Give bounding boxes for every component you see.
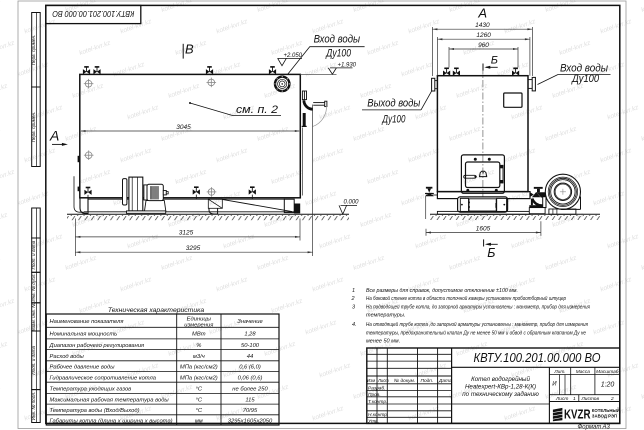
svg-text:Т.контр.: Т.контр.	[368, 399, 387, 405]
svg-text:kotel-kvr.kz: kotel-kvr.kz	[263, 340, 297, 357]
svg-text:kotel-kvr.kz: kotel-kvr.kz	[606, 104, 640, 121]
svg-text:Ду100: Ду100	[381, 114, 406, 126]
svg-text:kotel-kvr.kz: kotel-kvr.kz	[0, 254, 2, 271]
svg-text:kotel-kvr.kz: kotel-kvr.kz	[592, 319, 626, 336]
svg-text:kotel-kvr.kz: kotel-kvr.kz	[592, 190, 626, 207]
svg-text:Лист: Лист	[555, 396, 568, 402]
svg-text:kotel-kvr.kz: kotel-kvr.kz	[270, 168, 304, 185]
svg-text:температуры, предохранительный: температуры, предохранительный клапан Ду…	[366, 329, 586, 336]
svg-text:Гидравлическое сопротивление к: Гидравлическое сопротивление котла	[50, 375, 157, 381]
svg-text:+1.930: +1.930	[338, 62, 357, 68]
svg-text:kotel-kvr.kz: kotel-kvr.kz	[126, 104, 160, 121]
svg-text:kotel-kvr.kz: kotel-kvr.kz	[599, 18, 633, 35]
svg-text:kotel-kvr.kz: kotel-kvr.kz	[78, 39, 112, 56]
svg-text:0,06 (0,6): 0,06 (0,6)	[238, 375, 263, 381]
svg-text:kotel-kvr.kz: kotel-kvr.kz	[64, 125, 98, 142]
svg-text:Масса: Масса	[576, 369, 591, 375]
svg-text:3125: 3125	[179, 230, 194, 237]
svg-text:Подп.: Подп.	[421, 378, 434, 384]
svg-text:kotel-kvr.kz: kotel-kvr.kz	[448, 254, 482, 271]
svg-text:kotel-kvr.kz: kotel-kvr.kz	[352, 0, 386, 14]
svg-text:50-100: 50-100	[241, 343, 260, 349]
svg-text:Подп. и дата: Подп. и дата	[31, 345, 36, 374]
svg-text:1:20: 1:20	[601, 382, 615, 389]
svg-text:Значение: Значение	[237, 319, 263, 325]
svg-text:Вход воды: Вход воды	[314, 33, 361, 45]
svg-text:kotel-kvr.kz: kotel-kvr.kz	[503, 405, 537, 422]
svg-text:2: 2	[351, 296, 355, 302]
svg-text:kotel-kvr.kz: kotel-kvr.kz	[0, 340, 9, 357]
svg-text:Подп. и дата: Подп. и дата	[31, 240, 36, 269]
svg-text:3295х1605х2050: 3295х1605х2050	[228, 418, 273, 424]
svg-text:2: 2	[610, 396, 614, 402]
svg-text:1: 1	[573, 396, 576, 402]
svg-text:kotel-kvr.kz: kotel-kvr.kz	[119, 276, 153, 293]
svg-text:Масштаб: Масштаб	[596, 369, 619, 375]
svg-text:МПа (кгс/см2): МПа (кгс/см2)	[180, 365, 218, 371]
svg-text:Пров.: Пров.	[368, 392, 381, 398]
svg-text:0,6 (6,0): 0,6 (6,0)	[239, 365, 261, 371]
svg-text:70/95: 70/95	[243, 408, 258, 414]
svg-text:°С: °С	[196, 387, 203, 393]
svg-text:kotel-kvr.kz: kotel-kvr.kz	[414, 362, 448, 379]
svg-text:На подводящей трубе котла, д: На подводящей трубе котла, до запорной а…	[366, 304, 590, 311]
svg-text:kotel-kvr.kz: kotel-kvr.kz	[599, 147, 633, 164]
svg-text:kotel-kvr.kz: kotel-kvr.kz	[318, 233, 352, 250]
svg-text:Листов: Листов	[581, 396, 600, 402]
svg-text:№ докум.: № докум.	[394, 378, 415, 384]
svg-text:kotel-kvr.kz: kotel-kvr.kz	[407, 405, 441, 422]
svg-text:Б: Б	[487, 246, 495, 260]
svg-text:kotel-kvr.kz: kotel-kvr.kz	[352, 254, 386, 271]
svg-text:На отводящей трубе котла ,до з: На отводящей трубе котла ,до запорной ар…	[366, 321, 588, 328]
svg-text:kotel-kvr.kz: kotel-kvr.kz	[215, 147, 249, 164]
svg-text:kotel-kvr.kz: kotel-kvr.kz	[640, 0, 644, 14]
svg-text:kotel-kvr.kz: kotel-kvr.kz	[112, 61, 146, 78]
svg-text:мм: мм	[195, 418, 203, 424]
svg-text:kotel-kvr.kz: kotel-kvr.kz	[222, 233, 256, 250]
svg-text:Heatexpert-КВр-1,28-К(К): Heatexpert-КВр-1,28-К(К)	[465, 384, 536, 391]
svg-text:+2.050: +2.050	[284, 53, 303, 59]
svg-text:Ду100: Ду100	[570, 73, 599, 85]
svg-text:менее 50 мм.: менее 50 мм.	[366, 338, 400, 344]
svg-text:kotel-kvr.kz: kotel-kvr.kz	[0, 168, 16, 185]
svg-text:kotel-kvr.kz: kotel-kvr.kz	[0, 297, 16, 314]
svg-text:Диапазон рабочего регулировани: Диапазон рабочего регулирования	[49, 343, 145, 349]
svg-text:Котел водогрейный: Котел водогрейный	[471, 376, 530, 383]
svg-text:kotel-kvr.kz: kotel-kvr.kz	[160, 254, 194, 271]
svg-text:kotel-kvr.kz: kotel-kvr.kz	[366, 168, 400, 185]
svg-text:И: И	[552, 382, 557, 388]
svg-text:Н.контр.: Н.контр.	[368, 412, 388, 418]
svg-text:kotel-kvr.kz: kotel-kvr.kz	[599, 276, 633, 293]
svg-text:kotel-kvr.kz: kotel-kvr.kz	[640, 383, 644, 400]
svg-text:°С: °С	[196, 408, 203, 414]
svg-text:КВТУ.100.201.00.000 ВО: КВТУ.100.201.00.000 ВО	[474, 351, 601, 365]
svg-text:kotel-kvr.kz: kotel-kvr.kz	[318, 362, 352, 379]
svg-text:Формат: Формат	[578, 425, 602, 430]
svg-text:115: 115	[245, 397, 255, 403]
svg-text:4.: 4.	[352, 322, 357, 328]
svg-text:Дата: Дата	[438, 378, 452, 384]
svg-text:Перв. примен.: Перв. примен.	[31, 112, 36, 143]
svg-text:Техническая характеристика: Техническая характеристика	[108, 307, 204, 314]
svg-text:температуры.: температуры.	[366, 312, 405, 318]
svg-text:kotel-kvr.kz: kotel-kvr.kz	[64, 254, 98, 271]
svg-text:1260: 1260	[476, 32, 491, 39]
svg-text:Лист: Лист	[377, 378, 389, 383]
svg-text:KVZR: KVZR	[564, 407, 591, 422]
svg-text:В: В	[185, 42, 194, 57]
svg-text:Взам. инв. №: Взам. инв. №	[31, 303, 36, 331]
svg-text:kotel-kvr.kz: kotel-kvr.kz	[414, 233, 448, 250]
svg-text:Рабочее давление воды: Рабочее давление воды	[50, 365, 116, 371]
svg-text:А: А	[477, 6, 487, 21]
svg-text:Номинальная мощность: Номинальная мощность	[50, 332, 118, 338]
svg-text:Все размеры для справок, допус: Все размеры для справок, допустимое откл…	[366, 288, 518, 294]
svg-text:Температура воды (Вход/Выход): Температура воды (Вход/Выход)	[50, 408, 140, 414]
svg-text:kotel-kvr.kz: kotel-kvr.kz	[304, 319, 338, 336]
svg-text:Изм: Изм	[367, 378, 375, 383]
svg-text:Температура уходящих газов: Температура уходящих газов	[50, 387, 132, 393]
svg-text:3045: 3045	[176, 124, 191, 131]
svg-text:kotel-kvr.kz: kotel-kvr.kz	[606, 233, 640, 250]
svg-text:Габариты котла (длина х ширина: Габариты котла (длина х ширина х высота)	[50, 418, 173, 424]
svg-text:не более 250: не более 250	[232, 387, 268, 393]
svg-text:kotel-kvr.kz: kotel-kvr.kz	[407, 147, 441, 164]
svg-text:1,28: 1,28	[244, 332, 256, 338]
svg-text:kotel-kvr.kz: kotel-kvr.kz	[208, 190, 242, 207]
svg-text:А3: А3	[602, 425, 611, 430]
svg-text:44: 44	[247, 354, 253, 360]
svg-text:Расход воды: Расход воды	[50, 354, 85, 360]
svg-text:1605: 1605	[476, 225, 491, 232]
svg-text:kotel-kvr.kz: kotel-kvr.kz	[119, 147, 153, 164]
svg-text:kotel-kvr.kz: kotel-kvr.kz	[407, 18, 441, 35]
svg-text:kotel-kvr.kz: kotel-kvr.kz	[510, 233, 544, 250]
svg-text:м3/ч: м3/ч	[193, 354, 205, 360]
svg-text:Наименование показателя: Наименование показателя	[50, 319, 124, 325]
svg-text:kotel-kvr.kz: kotel-kvr.kz	[0, 0, 2, 14]
svg-text:kotel-kvr.kz: kotel-kvr.kz	[0, 39, 16, 56]
svg-text:Утв.: Утв.	[368, 419, 379, 425]
svg-text:kotel-kvr.kz: kotel-kvr.kz	[0, 211, 9, 228]
svg-text:Инв. № дубл.: Инв. № дубл.	[31, 273, 36, 301]
svg-text:kotel-kvr.kz: kotel-kvr.kz	[304, 61, 338, 78]
svg-text:kotel-kvr.kz: kotel-kvr.kz	[256, 0, 290, 14]
svg-text:Лит.: Лит.	[553, 369, 565, 375]
svg-text:kotel-kvr.kz: kotel-kvr.kz	[544, 254, 578, 271]
svg-text:kotel-kvr.kz: kotel-kvr.kz	[640, 254, 644, 271]
svg-text:kotel-kvr.kz: kotel-kvr.kz	[215, 18, 249, 35]
svg-text:3: 3	[352, 305, 356, 311]
svg-text:kotel-kvr.kz: kotel-kvr.kz	[304, 190, 338, 207]
svg-text:kotel-kvr.kz: kotel-kvr.kz	[174, 168, 208, 185]
svg-text:0.000: 0.000	[344, 200, 360, 206]
svg-text:kotel-kvr.kz: kotel-kvr.kz	[126, 233, 160, 250]
svg-text:kotel-kvr.kz: kotel-kvr.kz	[366, 39, 400, 56]
svg-text:см. п. 2: см. п. 2	[236, 104, 278, 116]
svg-text:kotel-kvr.kz: kotel-kvr.kz	[359, 211, 393, 228]
svg-text:kotel-kvr.kz: kotel-kvr.kz	[78, 168, 112, 185]
svg-text:kotel-kvr.kz: kotel-kvr.kz	[0, 383, 2, 400]
svg-text:kotel-kvr.kz: kotel-kvr.kz	[0, 82, 9, 99]
svg-text:kotel-kvr.kz: kotel-kvr.kz	[448, 0, 482, 14]
svg-text:Ду100: Ду100	[325, 47, 352, 59]
svg-text:измерения: измерения	[184, 322, 213, 328]
svg-text:kotel-kvr.kz: kotel-kvr.kz	[256, 125, 290, 142]
svg-text:kotel-kvr.kz: kotel-kvr.kz	[215, 276, 249, 293]
svg-text:kotel-kvr.kz: kotel-kvr.kz	[167, 82, 201, 99]
svg-text:1: 1	[352, 288, 355, 294]
svg-text:МВт: МВт	[192, 332, 206, 338]
svg-text:kotel-kvr.kz: kotel-kvr.kz	[311, 405, 345, 422]
svg-text:kotel-kvr.kz: kotel-kvr.kz	[400, 190, 434, 207]
svg-text:3295: 3295	[186, 245, 201, 252]
svg-text:1430: 1430	[475, 22, 490, 29]
svg-text:kotel-kvr.kz: kotel-kvr.kz	[544, 125, 578, 142]
svg-text:kotel-kvr.kz: kotel-kvr.kz	[311, 276, 345, 293]
svg-text:°С: °С	[196, 397, 203, 403]
svg-text:kotel-kvr.kz: kotel-kvr.kz	[544, 0, 578, 14]
svg-text:Перв. примен.: Перв. примен.	[31, 35, 36, 66]
svg-text:kotel-kvr.kz: kotel-kvr.kz	[119, 18, 153, 35]
svg-text:kotel-kvr.kz: kotel-kvr.kz	[318, 104, 352, 121]
svg-text:kotel-kvr.kz: kotel-kvr.kz	[400, 61, 434, 78]
svg-text:Разраб.: Разраб.	[368, 386, 385, 392]
svg-text:КОТЕЛЬНЫЙ: КОТЕЛЬНЫЙ	[592, 408, 620, 413]
svg-text:kotel-kvr.kz: kotel-kvr.kz	[311, 147, 345, 164]
svg-text:%: %	[196, 343, 201, 349]
svg-text:kotel-kvr.kz: kotel-kvr.kz	[270, 297, 304, 314]
svg-text:по техническому заданию: по техническому заданию	[462, 391, 539, 398]
svg-text:kotel-kvr.kz: kotel-kvr.kz	[160, 0, 194, 14]
svg-text:kotel-kvr.kz: kotel-kvr.kz	[256, 254, 290, 271]
svg-text:МПа (кгс/см2): МПа (кгс/см2)	[180, 375, 218, 381]
svg-text:Б: Б	[491, 55, 498, 67]
svg-text:960: 960	[478, 42, 489, 49]
svg-text:Инв. № подл.: Инв. № подл.	[31, 392, 36, 421]
svg-text:На боковой стенке котла в обла: На боковой стенке котла в области топочн…	[366, 295, 566, 302]
svg-text:kotel-kvr.kz: kotel-kvr.kz	[352, 125, 386, 142]
svg-text:kotel-kvr.kz: kotel-kvr.kz	[208, 61, 242, 78]
svg-text:КВТУ.100.201.00.000 ВО: КВТУ.100.201.00.000 ВО	[52, 9, 134, 18]
svg-text:Выход воды: Выход воды	[367, 97, 420, 109]
svg-text:kotel-kvr.kz: kotel-kvr.kz	[640, 125, 644, 142]
svg-text:ЗАВОД РЭП: ЗАВОД РЭП	[592, 414, 617, 419]
svg-text:kotel-kvr.kz: kotel-kvr.kz	[0, 125, 2, 142]
svg-text:Максимальная рабочая температу: Максимальная рабочая температура воды	[50, 397, 170, 403]
svg-text:А: А	[49, 127, 59, 143]
svg-text:kotel-kvr.kz: kotel-kvr.kz	[558, 39, 592, 56]
